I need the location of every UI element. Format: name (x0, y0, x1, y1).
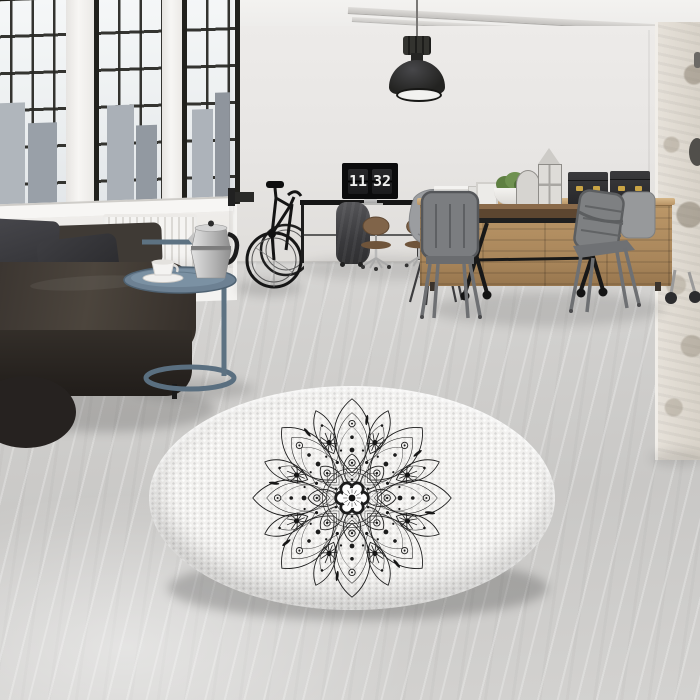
city-building (107, 105, 134, 206)
city-building (192, 109, 214, 200)
dining-chair-left (420, 192, 482, 319)
mandala-pattern (163, 394, 541, 602)
lamp-rim (396, 88, 442, 102)
mandala-rug (149, 386, 555, 610)
coffee-cup (140, 256, 186, 284)
wall-disc (689, 138, 700, 166)
city-building (136, 125, 156, 205)
window-pillar (162, 0, 182, 205)
loft-room-photo: 11 32 (0, 0, 700, 700)
wall-mark (694, 52, 700, 68)
rack-caster (340, 262, 345, 267)
window-1 (0, 0, 76, 219)
clock-minutes-card: 32 (372, 169, 392, 194)
city-building (28, 122, 57, 212)
dining-chair-back (621, 192, 655, 238)
office-chair-1 (361, 217, 391, 271)
lamp-cord (416, 0, 418, 38)
city-building (0, 102, 25, 213)
window-2 (94, 0, 172, 211)
moka-pot (180, 220, 242, 282)
clock-hours-card: 11 (348, 169, 368, 194)
window-pillar (66, 0, 94, 208)
column-base-shadow (650, 450, 700, 466)
monitor-flip-clock: 11 32 (342, 163, 398, 199)
office-chair-wheel (665, 270, 700, 304)
dining-set (415, 188, 700, 328)
